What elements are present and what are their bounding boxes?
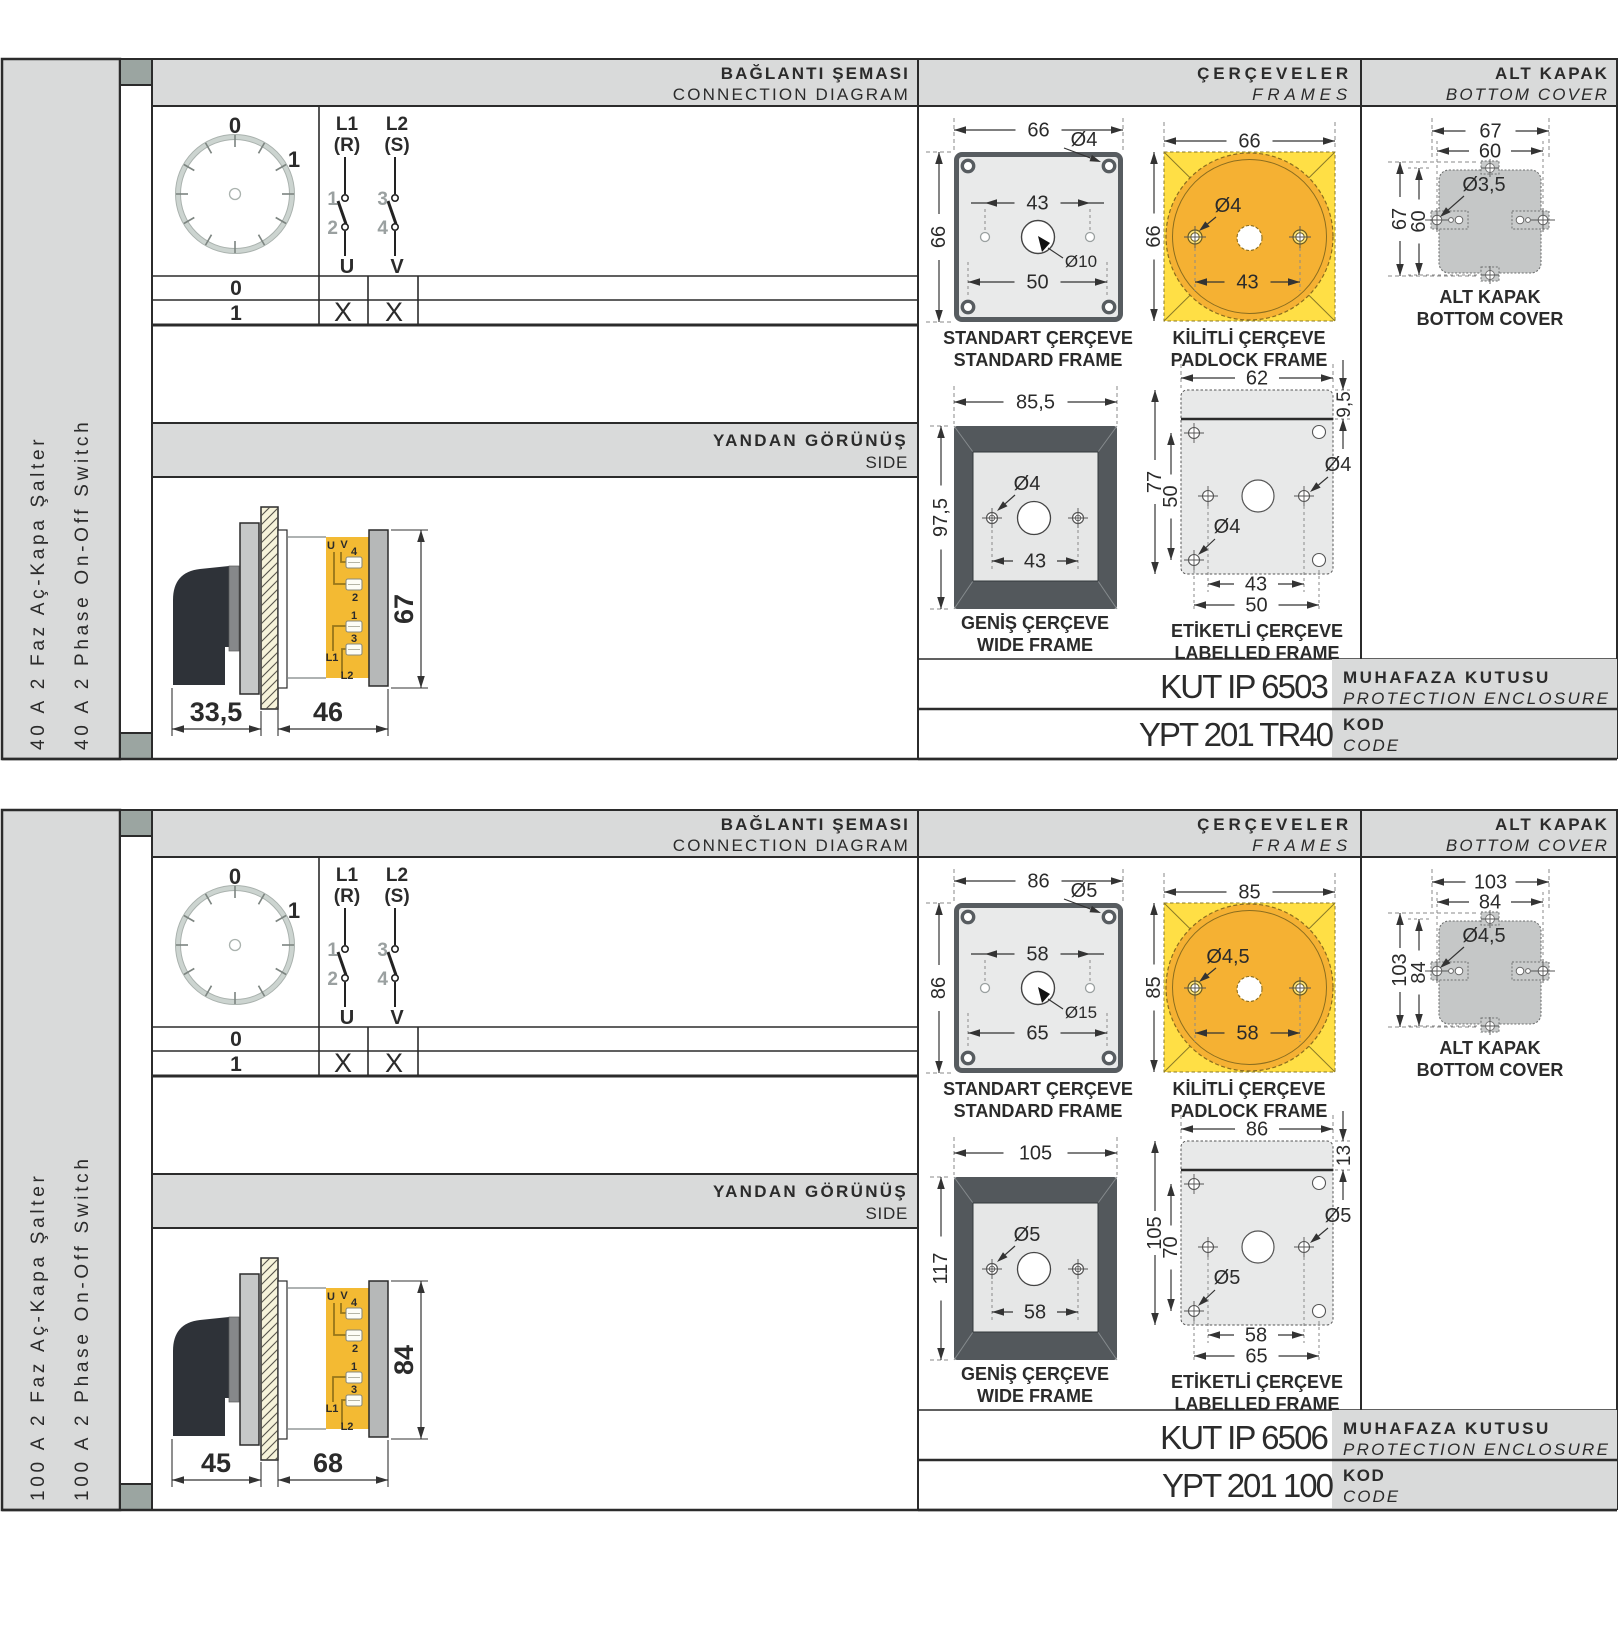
svg-text:0: 0 — [230, 277, 242, 300]
svg-text:(S): (S) — [384, 886, 409, 907]
svg-text:3: 3 — [377, 189, 388, 210]
svg-text:100 A 2 Faz Aç-Kapa Şalter: 100 A 2 Faz Aç-Kapa Şalter — [28, 1172, 49, 1501]
svg-text:84: 84 — [1479, 892, 1501, 914]
svg-text:(R): (R) — [334, 135, 360, 156]
svg-text:STANDART ÇERÇEVE: STANDART ÇERÇEVE — [943, 328, 1133, 348]
svg-text:13: 13 — [1334, 1145, 1355, 1166]
svg-text:0: 0 — [229, 864, 241, 889]
svg-text:Ø5: Ø5 — [1014, 1224, 1041, 1246]
svg-text:3: 3 — [351, 1384, 357, 1396]
svg-text:2: 2 — [327, 218, 338, 239]
svg-text:105: 105 — [1019, 1143, 1052, 1165]
svg-text:PROTECTION ENCLOSURE: PROTECTION ENCLOSURE — [1343, 689, 1610, 708]
svg-text:65: 65 — [1245, 1346, 1267, 1368]
svg-text:U: U — [327, 1291, 335, 1303]
svg-text:BOTTOM COVER: BOTTOM COVER — [1446, 85, 1609, 104]
svg-text:9,5: 9,5 — [1334, 391, 1355, 417]
svg-text:58: 58 — [1236, 1023, 1258, 1045]
svg-text:MUHAFAZA KUTUSU: MUHAFAZA KUTUSU — [1343, 668, 1551, 687]
svg-text:Ø4: Ø4 — [1214, 516, 1241, 538]
svg-text:60: 60 — [1408, 210, 1430, 232]
svg-text:YANDAN GÖRÜNÜŞ: YANDAN GÖRÜNÜŞ — [713, 431, 908, 450]
svg-text:62: 62 — [1246, 368, 1268, 390]
svg-text:100 A 2 Phase On-Off Switch: 100 A 2 Phase On-Off Switch — [72, 1155, 93, 1501]
svg-text:X: X — [334, 297, 352, 327]
svg-text:1: 1 — [327, 189, 338, 210]
svg-text:KOD: KOD — [1343, 715, 1385, 734]
svg-text:V: V — [390, 256, 404, 278]
svg-text:1: 1 — [230, 302, 242, 325]
svg-text:84: 84 — [389, 1345, 419, 1375]
svg-text:66: 66 — [1027, 120, 1049, 142]
svg-text:KUT IP 6506: KUT IP 6506 — [1160, 1419, 1327, 1456]
svg-text:Ø5: Ø5 — [1325, 1205, 1352, 1227]
svg-text:Ø5: Ø5 — [1071, 880, 1098, 902]
svg-text:70: 70 — [1160, 1236, 1182, 1258]
svg-text:BOTTOM COVER: BOTTOM COVER — [1446, 836, 1609, 855]
svg-text:50: 50 — [1160, 485, 1182, 507]
svg-text:85: 85 — [1238, 882, 1260, 904]
svg-text:Ø4: Ø4 — [1071, 129, 1098, 151]
svg-text:68: 68 — [313, 1448, 343, 1478]
svg-text:YPT 201 TR40: YPT 201 TR40 — [1139, 716, 1334, 753]
svg-text:Ø4: Ø4 — [1014, 473, 1041, 495]
svg-text:L1: L1 — [336, 865, 359, 886]
svg-text:Ø10: Ø10 — [1065, 252, 1097, 271]
svg-text:BAĞLANTI ŞEMASI: BAĞLANTI ŞEMASI — [721, 815, 910, 834]
svg-text:67: 67 — [389, 594, 419, 624]
svg-text:1: 1 — [351, 1361, 357, 1373]
svg-text:85,5: 85,5 — [1016, 392, 1055, 414]
svg-text:4: 4 — [351, 546, 358, 558]
svg-text:BOTTOM COVER: BOTTOM COVER — [1417, 1060, 1564, 1080]
svg-text:97,5: 97,5 — [930, 498, 952, 537]
svg-text:FRAMES: FRAMES — [1252, 836, 1352, 855]
svg-text:STANDARD FRAME: STANDARD FRAME — [954, 350, 1123, 370]
svg-text:4: 4 — [377, 218, 388, 239]
svg-text:2: 2 — [352, 1343, 358, 1355]
svg-text:U: U — [340, 256, 354, 278]
svg-text:X: X — [385, 297, 403, 327]
svg-text:3: 3 — [377, 940, 388, 961]
svg-text:33,5: 33,5 — [190, 697, 243, 727]
svg-text:ALT KAPAK: ALT KAPAK — [1439, 287, 1540, 307]
svg-text:KUT IP 6503: KUT IP 6503 — [1160, 668, 1327, 705]
svg-text:1: 1 — [230, 1053, 242, 1076]
svg-text:ALT KAPAK: ALT KAPAK — [1495, 64, 1609, 83]
svg-text:ALT KAPAK: ALT KAPAK — [1495, 815, 1609, 834]
svg-text:Ø5: Ø5 — [1214, 1267, 1241, 1289]
svg-text:ÇERÇEVELER: ÇERÇEVELER — [1197, 64, 1352, 83]
svg-text:58: 58 — [1024, 1302, 1046, 1324]
svg-text:43: 43 — [1026, 193, 1048, 215]
svg-text:GENİŞ ÇERÇEVE: GENİŞ ÇERÇEVE — [961, 1364, 1109, 1384]
svg-text:YPT 201 100: YPT 201 100 — [1162, 1467, 1334, 1504]
svg-text:CODE: CODE — [1343, 736, 1400, 755]
svg-text:46: 46 — [313, 697, 343, 727]
svg-text:GENİŞ ÇERÇEVE: GENİŞ ÇERÇEVE — [961, 613, 1109, 633]
svg-text:U: U — [327, 540, 335, 552]
svg-text:X: X — [385, 1048, 403, 1078]
svg-text:66: 66 — [1238, 131, 1260, 153]
svg-text:Ø4,5: Ø4,5 — [1206, 946, 1249, 968]
svg-text:(S): (S) — [384, 135, 409, 156]
svg-text:WIDE FRAME: WIDE FRAME — [977, 1386, 1093, 1406]
svg-text:2: 2 — [327, 969, 338, 990]
svg-text:Ø4: Ø4 — [1325, 454, 1352, 476]
svg-text:V: V — [390, 1007, 404, 1029]
svg-text:2: 2 — [352, 592, 358, 604]
svg-text:45: 45 — [201, 1448, 231, 1478]
svg-text:86: 86 — [1027, 871, 1049, 893]
svg-text:117: 117 — [930, 1253, 952, 1285]
svg-text:X: X — [334, 1048, 352, 1078]
svg-text:L1: L1 — [326, 652, 339, 664]
svg-text:STANDART ÇERÇEVE: STANDART ÇERÇEVE — [943, 1079, 1133, 1099]
svg-text:ÇERÇEVELER: ÇERÇEVELER — [1197, 815, 1352, 834]
svg-text:1: 1 — [327, 940, 338, 961]
svg-text:84: 84 — [1408, 961, 1430, 983]
svg-text:86: 86 — [1246, 1119, 1268, 1141]
svg-text:60: 60 — [1479, 141, 1501, 163]
svg-text:50: 50 — [1026, 272, 1048, 294]
svg-text:YANDAN GÖRÜNÜŞ: YANDAN GÖRÜNÜŞ — [713, 1182, 908, 1201]
svg-text:CODE: CODE — [1343, 1487, 1400, 1506]
svg-text:FRAMES: FRAMES — [1252, 85, 1352, 104]
svg-text:LABELLED FRAME: LABELLED FRAME — [1175, 1394, 1340, 1414]
svg-text:LABELLED FRAME: LABELLED FRAME — [1175, 643, 1340, 663]
svg-text:3: 3 — [351, 633, 357, 645]
svg-text:V: V — [340, 1290, 348, 1302]
svg-text:SIDE: SIDE — [866, 1204, 908, 1223]
svg-text:CONNECTION DIAGRAM: CONNECTION DIAGRAM — [673, 85, 910, 104]
svg-text:103: 103 — [1474, 872, 1507, 894]
svg-text:Ø15: Ø15 — [1065, 1003, 1097, 1022]
svg-text:58: 58 — [1245, 1325, 1267, 1347]
svg-text:40 A 2 Phase On-Off Switch: 40 A 2 Phase On-Off Switch — [72, 419, 93, 750]
svg-text:43: 43 — [1236, 272, 1258, 294]
svg-text:4: 4 — [377, 969, 388, 990]
svg-text:L2: L2 — [386, 114, 408, 135]
svg-text:1: 1 — [288, 147, 300, 172]
svg-text:Ø3,5: Ø3,5 — [1462, 174, 1505, 196]
svg-text:L2: L2 — [341, 670, 354, 682]
svg-text:Ø4,5: Ø4,5 — [1462, 925, 1505, 947]
svg-text:V: V — [340, 539, 348, 551]
svg-text:66: 66 — [1143, 225, 1165, 247]
svg-text:85: 85 — [1143, 976, 1165, 998]
svg-text:BAĞLANTI ŞEMASI: BAĞLANTI ŞEMASI — [721, 64, 910, 83]
svg-text:KİLİTLİ ÇERÇEVE: KİLİTLİ ÇERÇEVE — [1172, 328, 1325, 348]
svg-text:L1: L1 — [326, 1403, 339, 1415]
svg-text:STANDARD FRAME: STANDARD FRAME — [954, 1101, 1123, 1121]
svg-text:L2: L2 — [386, 865, 408, 886]
svg-text:50: 50 — [1245, 595, 1267, 617]
svg-text:65: 65 — [1026, 1023, 1048, 1045]
svg-text:58: 58 — [1026, 944, 1048, 966]
svg-text:BOTTOM COVER: BOTTOM COVER — [1417, 309, 1564, 329]
svg-text:67: 67 — [1479, 121, 1501, 143]
svg-text:L2: L2 — [341, 1421, 354, 1433]
svg-text:WIDE FRAME: WIDE FRAME — [977, 635, 1093, 655]
svg-text:(R): (R) — [334, 886, 360, 907]
svg-text:ETİKETLİ ÇERÇEVE: ETİKETLİ ÇERÇEVE — [1171, 1372, 1343, 1392]
svg-text:0: 0 — [229, 113, 241, 138]
svg-text:0: 0 — [230, 1028, 242, 1051]
svg-text:4: 4 — [351, 1297, 358, 1309]
svg-text:SIDE: SIDE — [866, 453, 908, 472]
svg-text:KOD: KOD — [1343, 1466, 1385, 1485]
svg-text:KİLİTLİ ÇERÇEVE: KİLİTLİ ÇERÇEVE — [1172, 1079, 1325, 1099]
svg-text:86: 86 — [928, 977, 950, 999]
svg-text:PROTECTION ENCLOSURE: PROTECTION ENCLOSURE — [1343, 1440, 1610, 1459]
svg-text:43: 43 — [1024, 551, 1046, 573]
svg-text:1: 1 — [351, 610, 357, 622]
svg-text:MUHAFAZA KUTUSU: MUHAFAZA KUTUSU — [1343, 1419, 1551, 1438]
svg-text:66: 66 — [928, 226, 950, 248]
svg-text:43: 43 — [1245, 574, 1267, 596]
svg-text:U: U — [340, 1007, 354, 1029]
svg-text:CONNECTION DIAGRAM: CONNECTION DIAGRAM — [673, 836, 910, 855]
svg-text:Ø4: Ø4 — [1215, 195, 1242, 217]
svg-text:1: 1 — [288, 898, 300, 923]
svg-text:L1: L1 — [336, 114, 359, 135]
svg-text:40 A 2 Faz Aç-Kapa Şalter: 40 A 2 Faz Aç-Kapa Şalter — [28, 436, 49, 750]
svg-text:ALT KAPAK: ALT KAPAK — [1439, 1038, 1540, 1058]
svg-text:ETİKETLİ ÇERÇEVE: ETİKETLİ ÇERÇEVE — [1171, 621, 1343, 641]
